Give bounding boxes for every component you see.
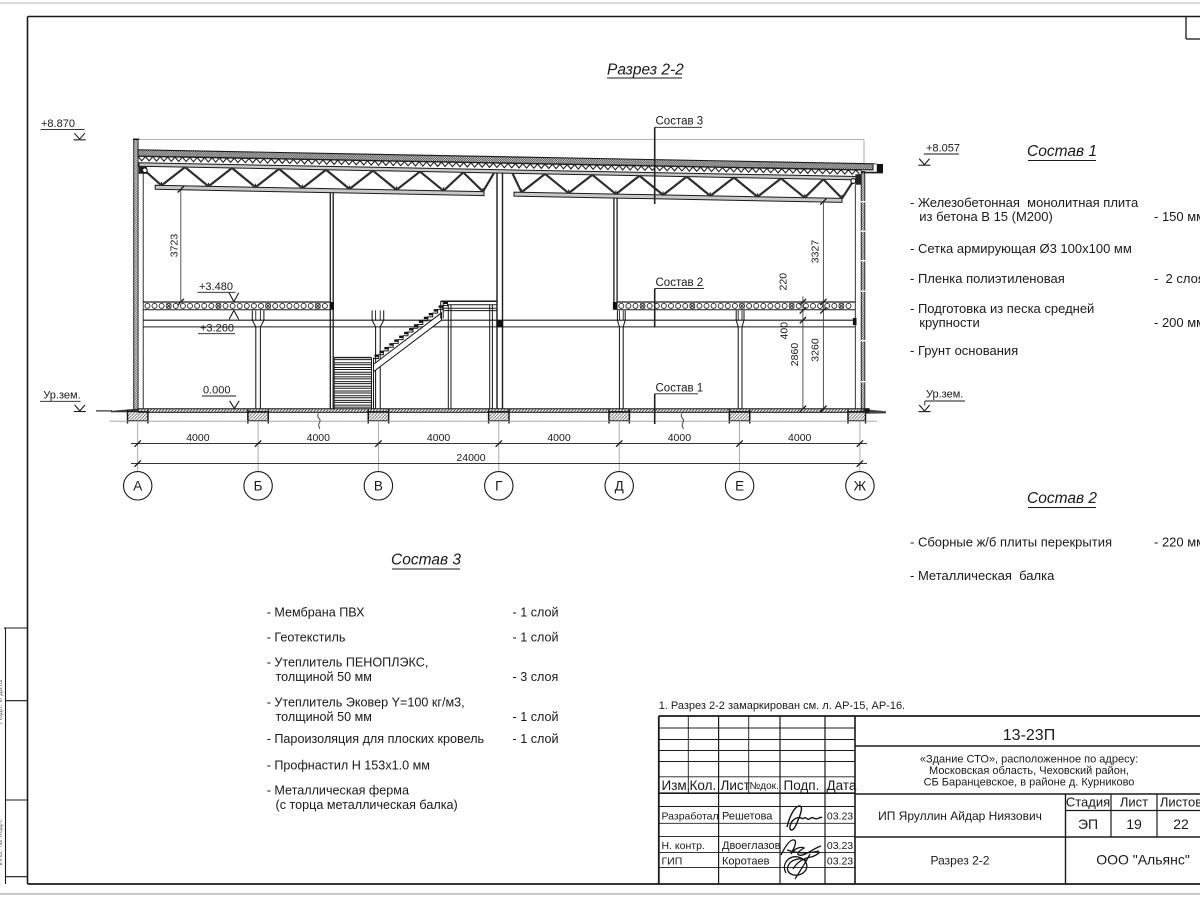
svg-text:- Железобетонная монолитная п: - Железобетонная монолитная плита <box>910 195 1139 210</box>
svg-text:В: В <box>374 479 383 494</box>
svg-text:- 1 слой: - 1 слой <box>513 630 559 644</box>
svg-text:Двоеглазов: Двоеглазов <box>722 840 781 852</box>
svg-text:400: 400 <box>779 322 791 340</box>
svg-text:Решетова: Решетова <box>722 811 773 823</box>
svg-text:19: 19 <box>1126 816 1142 832</box>
svg-text:Г: Г <box>495 479 503 494</box>
svg-text:Ур.зем.: Ур.зем. <box>926 389 963 401</box>
svg-text:03.23: 03.23 <box>827 840 853 852</box>
svg-text:СБ Баранцевское, в районе д. К: СБ Баранцевское, в районе д. Курниково <box>924 777 1135 789</box>
svg-text:- Сборные ж/б плиты перекрытия: - Сборные ж/б плиты перекрытия <box>910 535 1112 550</box>
svg-text:ЭП: ЭП <box>1078 816 1098 832</box>
svg-text:Состав 2: Состав 2 <box>1027 490 1097 507</box>
svg-text:- 220 мм: - 220 мм <box>1154 535 1200 550</box>
svg-text:Ж: Ж <box>854 479 867 494</box>
svg-text:+3.480: +3.480 <box>199 281 233 293</box>
svg-text:Стадия: Стадия <box>1066 795 1110 810</box>
svg-text:Состав 2: Состав 2 <box>656 277 704 289</box>
svg-text:03.23: 03.23 <box>827 856 853 868</box>
svg-text:- Пленка полиэтиленовая: - Пленка полиэтиленовая <box>910 271 1065 286</box>
svg-text:Дата: Дата <box>827 778 857 793</box>
svg-text:24000: 24000 <box>456 452 485 464</box>
svg-text:Инв. № подл.: Инв. № подл. <box>0 819 4 866</box>
svg-text:крупности: крупности <box>919 315 979 330</box>
svg-text:«Здание СТО», расположенное по: «Здание СТО», расположенное по адресу: <box>920 754 1138 766</box>
svg-text:- 200 мм: - 200 мм <box>1154 315 1200 330</box>
svg-text:2860: 2860 <box>789 343 801 367</box>
svg-text:1. Разрез 2-2 замаркирован см.: 1. Разрез 2-2 замаркирован см. л. АР-15,… <box>659 700 905 712</box>
svg-text:Разрез 2-2: Разрез 2-2 <box>607 62 684 79</box>
svg-text:Н. контр.: Н. контр. <box>662 840 705 852</box>
svg-text:- Утеплитель Эковер Y=100 кг/м: - Утеплитель Эковер Y=100 кг/м3, <box>267 696 465 710</box>
svg-text:Состав 3: Состав 3 <box>391 552 461 569</box>
svg-text:- Подготовка из песка средней: - Подготовка из песка средней <box>910 301 1094 316</box>
svg-text:0.000: 0.000 <box>203 385 231 397</box>
svg-text:Лист: Лист <box>1120 795 1148 810</box>
svg-text:толщиной 50 мм: толщиной 50 мм <box>276 710 372 724</box>
svg-text:- Грунт основания: - Грунт основания <box>910 343 1018 358</box>
svg-text:+8.870: +8.870 <box>41 118 75 130</box>
svg-text:Б: Б <box>254 479 263 494</box>
svg-text:03.23: 03.23 <box>827 811 853 823</box>
svg-text:Состав 3: Состав 3 <box>656 115 704 127</box>
svg-text:- Сетка армирующая Ø3 100х100: - Сетка армирующая Ø3 100х100 мм <box>910 241 1132 256</box>
svg-text:4000: 4000 <box>668 432 692 444</box>
svg-text:- Утеплитель ПЕНОПЛЭКС,: - Утеплитель ПЕНОПЛЭКС, <box>267 656 429 670</box>
svg-text:А: А <box>133 479 142 494</box>
svg-text:ГИП: ГИП <box>662 856 683 868</box>
svg-text:- 1 слой: - 1 слой <box>513 710 559 724</box>
svg-text:- 3 слоя: - 3 слоя <box>513 670 559 684</box>
svg-text:Подп.: Подп. <box>784 778 820 793</box>
svg-text:Изм.: Изм. <box>662 778 691 793</box>
svg-text:Е: Е <box>735 479 744 494</box>
svg-text:4000: 4000 <box>788 432 812 444</box>
svg-text:из бетона В 15 (М200): из бетона В 15 (М200) <box>919 209 1053 224</box>
svg-text:Разработал: Разработал <box>662 811 719 823</box>
svg-text:№док.: №док. <box>750 781 779 792</box>
svg-text:220: 220 <box>778 273 790 291</box>
svg-text:- Металлическая ферма: - Металлическая ферма <box>267 783 409 797</box>
svg-text:- 150 мм: - 150 мм <box>1154 209 1200 224</box>
svg-text:4000: 4000 <box>427 432 451 444</box>
svg-text:ИП Яруллин Айдар Ниязович: ИП Яруллин Айдар Ниязович <box>878 809 1042 823</box>
svg-text:Подп. и дата: Подп. и дата <box>0 679 4 724</box>
svg-text:22: 22 <box>1173 816 1189 832</box>
svg-text:Листов: Листов <box>1160 795 1200 810</box>
svg-text:4000: 4000 <box>186 432 210 444</box>
svg-text:- Геотекстиль: - Геотекстиль <box>267 630 346 644</box>
svg-text:- 1 слой: - 1 слой <box>513 732 559 746</box>
svg-text:Кол.: Кол. <box>690 778 717 793</box>
svg-text:+8.057: +8.057 <box>926 143 960 155</box>
svg-text:3260: 3260 <box>809 338 821 362</box>
svg-text:3327: 3327 <box>809 240 821 264</box>
svg-text:- Профнастил Н 153х1.0 мм: - Профнастил Н 153х1.0 мм <box>267 758 430 772</box>
svg-text:- Металлическая балка: - Металлическая балка <box>910 568 1055 583</box>
svg-text:- Пароизоляция для плоских кро: - Пароизоляция для плоских кровель <box>267 732 485 746</box>
svg-text:- Мембрана ПВХ: - Мембрана ПВХ <box>267 606 365 620</box>
svg-text:Ур.зем.: Ур.зем. <box>43 390 80 402</box>
svg-text:- 1 слой: - 1 слой <box>513 606 559 620</box>
svg-text:- 2 слоя: - 2 слоя <box>1154 271 1200 286</box>
svg-text:13-23П: 13-23П <box>1003 727 1055 744</box>
svg-text:4000: 4000 <box>307 432 331 444</box>
svg-text:3723: 3723 <box>169 234 181 258</box>
svg-text:ООО "Альянс": ООО "Альянс" <box>1096 852 1190 868</box>
svg-text:(с торца металлическая балка): (с торца металлическая балка) <box>276 798 458 812</box>
svg-text:Московская область, Чеховский: Московская область, Чеховский район, <box>929 765 1129 777</box>
svg-text:Коротаев: Коротаев <box>722 856 770 868</box>
svg-text:+3.260: +3.260 <box>200 323 234 335</box>
svg-text:Лист: Лист <box>721 778 750 793</box>
svg-text:Разрез 2-2: Разрез 2-2 <box>931 854 990 868</box>
svg-text:Д: Д <box>615 479 624 494</box>
svg-text:Состав 1: Состав 1 <box>1027 143 1097 160</box>
svg-text:толщиной 50 мм: толщиной 50 мм <box>276 670 372 684</box>
svg-text:4000: 4000 <box>547 432 571 444</box>
svg-text:Состав 1: Состав 1 <box>656 382 704 394</box>
